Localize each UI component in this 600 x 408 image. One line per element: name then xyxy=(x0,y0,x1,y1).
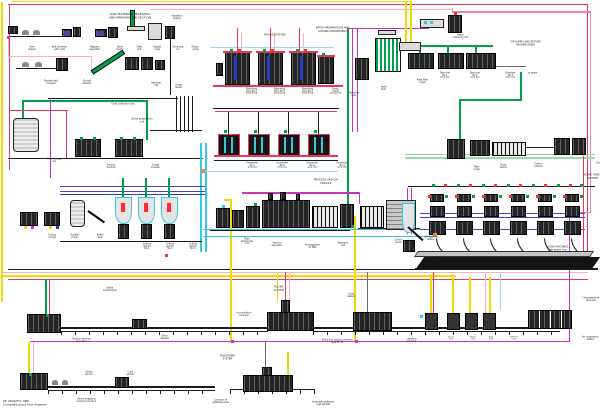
lbl-cr2-text: Culture reactor No.2 xyxy=(155,243,185,250)
cr1-slit xyxy=(121,203,125,212)
salmon-feed-2 xyxy=(274,33,275,51)
lbl-pallet-sys: PALLETIZING SYSTEM xyxy=(170,351,216,370)
lbl-packer-text: Case packer xyxy=(113,371,147,376)
filler4-green xyxy=(526,195,529,198)
lbl-dis1-text: Dissolver No.1 V=1 m3 xyxy=(430,72,460,79)
lbl-mill-text: Hammer mill xyxy=(142,82,170,87)
conveyor2-legs xyxy=(48,390,215,394)
lbl-buffer-text: Buffer tank xyxy=(86,234,114,239)
black-h-130 xyxy=(150,130,202,131)
magenta-center-v1 xyxy=(352,28,354,132)
tl-drop-vert xyxy=(170,38,171,95)
filler5-green xyxy=(553,195,556,198)
crimson-l-vert xyxy=(66,110,67,158)
f1-slit-a xyxy=(224,137,226,153)
magenta-dot-pump1 xyxy=(31,226,34,229)
band-line-yellow xyxy=(2,275,456,277)
rinser-machine xyxy=(27,314,61,333)
bucket-elevator xyxy=(56,58,68,71)
lbl-caption: PR 2009/FTL OBE Complete plant flow diag… xyxy=(3,396,95,408)
dosing-pump-1 xyxy=(20,212,38,226)
cyan-center-h236 xyxy=(203,236,433,237)
mint-supply-2 xyxy=(405,157,595,159)
roller-drive xyxy=(97,31,104,36)
indigo-rail-b xyxy=(60,191,205,192)
crimson-l-horiz xyxy=(10,110,68,111)
elevator-head xyxy=(73,27,81,37)
green-reactor-stub2 xyxy=(145,178,147,198)
blue-rail xyxy=(60,194,205,195)
cr1-stand xyxy=(118,224,129,239)
lbl-separator2: Separator unit xyxy=(302,238,332,257)
lbl-wrap-line-text: Shrink-wrapping machine line No.2 xyxy=(58,398,114,403)
rail-green-7 xyxy=(580,184,583,187)
yellow-tr-v2 xyxy=(410,2,412,43)
lbl-cr3-text: Culture reactor No.3 xyxy=(178,243,208,250)
lbl-sieving-text: Sieving machine xyxy=(96,164,126,169)
fermenter-3 xyxy=(278,134,300,156)
rotary-valve xyxy=(165,26,175,39)
gray-drain-h xyxy=(496,66,526,67)
red-dot-reactor xyxy=(165,254,168,257)
green-dot-dt1 xyxy=(230,49,233,52)
pile-1 xyxy=(22,30,29,35)
orange-conn-right xyxy=(433,233,437,237)
control-cabinet xyxy=(492,142,526,156)
green-dot-su2 xyxy=(93,137,96,140)
water-meter-unit xyxy=(399,42,421,51)
lbl-slurry-text: Slurry preparation unit xyxy=(122,118,162,123)
lbl-transfer-pump: Transfer pump xyxy=(42,230,66,249)
green-dot-m4 xyxy=(29,373,32,376)
right-cluster-h xyxy=(526,147,554,148)
lbl-dosing-pumps: Dosing pumps xyxy=(14,230,42,249)
lbl-crate-washer-text: Crate washer xyxy=(333,293,369,298)
lbl-cpanel: Control panel xyxy=(352,235,386,254)
tl-conveyor-rail1 xyxy=(8,36,62,37)
red-dot-dt1 xyxy=(238,49,241,52)
green-dust-vert2 xyxy=(146,100,148,140)
sieving-machine xyxy=(75,139,101,157)
lbl-wrap-line: Shrink-wrapping machine line No.2 xyxy=(10,394,66,408)
receiving-bin xyxy=(148,23,162,40)
process-tower-3 xyxy=(296,194,300,200)
crimson-feed-1 xyxy=(237,28,238,51)
filler-2-top xyxy=(457,194,471,202)
pink-dose-v xyxy=(485,272,486,314)
magenta-center-h xyxy=(347,28,429,30)
green-dot-fm4 xyxy=(314,130,317,133)
lbl-cabinet-text: Control cabinet xyxy=(521,163,555,168)
lbl-kneader-text: Dough kneader xyxy=(140,164,172,169)
black-riser-1 xyxy=(176,96,177,132)
lbl-dt3-text: Dissolving tank No.3 V=2.5 m3 xyxy=(294,88,320,95)
lbl-filling-system: FILLING SYSTEM xyxy=(228,282,272,301)
lbl-pumpst: Pump station xyxy=(468,160,494,179)
yellow-dot-pump1 xyxy=(24,226,27,229)
lbl-dis3: Dissolver No.3 V=1 m3 xyxy=(464,72,498,93)
filler-4-low xyxy=(510,221,527,235)
black-riser-5 xyxy=(192,96,193,132)
lbl-unscrambler: Bottle unscrambler xyxy=(58,283,96,302)
yellow-tr-v1 xyxy=(405,2,407,43)
lbl-cooker-text: Syrup cooker V=1.6 m3 xyxy=(322,88,348,95)
orchid-stub xyxy=(452,8,453,13)
palecyan-b2-line xyxy=(205,171,338,172)
green-dot-dt4 xyxy=(322,53,325,56)
green-dot-su4 xyxy=(133,137,136,140)
rail-red-6 xyxy=(569,184,572,187)
filler-2-low xyxy=(456,221,473,235)
lbl-fm3-text: Fermenter No.3 V=4 m3 xyxy=(298,162,326,169)
lbl-compressor-text: Compressor unit xyxy=(583,162,600,167)
lbl-carton-text: Carton erector xyxy=(74,371,104,376)
rail-green-2 xyxy=(457,184,460,187)
blue-dot-pump2 xyxy=(56,226,59,229)
b1-small-tank-a xyxy=(216,63,223,76)
rail-red-3 xyxy=(494,184,497,187)
f4-slit-b xyxy=(321,137,323,153)
lbl-fm3: Fermenter No.3 V=4 m3 xyxy=(274,162,302,183)
screw-feeder xyxy=(141,57,153,70)
paleblue-dose-v xyxy=(500,272,501,310)
crimson-m1-vert xyxy=(49,279,51,315)
rail-green-4 xyxy=(507,184,510,187)
lbl-dis2-text: Dissolver No.2 V=1 m3 xyxy=(460,72,490,79)
lbl-kneader: Dough kneader xyxy=(112,160,144,179)
lbl-dis2: Dissolver No.2 V=1 m3 xyxy=(434,72,464,93)
cr2-stand xyxy=(141,224,152,239)
filler1-green xyxy=(445,195,448,198)
indigo-rail-a xyxy=(60,186,205,187)
lbl-sifter-text: Sifter unit xyxy=(129,46,149,51)
mt-divider-3 xyxy=(561,311,562,328)
lbl-dt3: Dissolving tank No.3 V=2.5 m3 xyxy=(272,88,298,109)
filler5-red xyxy=(536,195,539,198)
b2-drop-2 xyxy=(258,112,259,134)
yellow-dose-v4 xyxy=(489,277,491,314)
process-tower-2 xyxy=(280,192,286,200)
lbl-accum-text: Accumulation conveyor xyxy=(222,312,266,317)
cyan-dot-past xyxy=(222,205,225,208)
cyan-trunk-v1 xyxy=(200,143,202,252)
red-dot-hopper-top xyxy=(454,12,457,15)
black-riser-2 xyxy=(180,96,181,132)
f4-slit-a xyxy=(314,137,316,153)
carton-2 xyxy=(62,380,68,385)
filler-1-low xyxy=(429,221,446,235)
compressor-b xyxy=(572,138,586,155)
yellow-dose-v1 xyxy=(430,277,432,314)
lbl-cooler-text: Plate cooler xyxy=(465,166,489,171)
fermenter-1 xyxy=(218,134,240,156)
filler-3-top xyxy=(484,194,498,202)
yellow-top-line xyxy=(12,1,412,3)
lbl-fm1: Fermenter No.1 V=4 m3 xyxy=(214,162,242,183)
lbl-slurry: Slurry preparation unit xyxy=(92,114,132,133)
green-dot-fm1 xyxy=(224,130,227,133)
palletizer-tower xyxy=(262,367,272,376)
dose-tank-3 xyxy=(465,313,478,330)
green-dot-m1 xyxy=(46,314,49,317)
salmon-tl-horiz xyxy=(8,56,92,57)
lbl-elevator: Bucket elevator xyxy=(46,76,76,95)
mt-divider-1 xyxy=(539,311,540,328)
lbl-caption-text: PR 2009/FTL OBE Complete plant flow diag… xyxy=(3,400,95,407)
filling-machine xyxy=(267,312,314,331)
deaerator-unit xyxy=(232,210,244,228)
dt2-agitator xyxy=(267,56,270,80)
yellow-m2-vert xyxy=(277,272,279,301)
lbl-dt1-text: Dissolving tank No.1 V=2.5 m3 xyxy=(238,88,264,95)
cr2-slit xyxy=(144,203,148,212)
lbl-yeast-text: Yeast tank xyxy=(370,86,396,91)
green-reactor-stub1 xyxy=(122,178,124,198)
lbl-mag-separator-text: Magnetic separator xyxy=(80,46,110,51)
black-riser-3 xyxy=(184,96,185,132)
filler2-red xyxy=(455,195,458,198)
f3-slit-a xyxy=(284,137,286,153)
green-dot-fm2 xyxy=(254,130,257,133)
case-packer-machine xyxy=(20,373,48,390)
lbl-elevator-text: Bucket elevator xyxy=(72,80,102,85)
lbl-conv-pallet-text: Conveyor to palletizing area xyxy=(190,399,252,404)
crimson-feed-2 xyxy=(270,28,271,51)
red-dot-dt2 xyxy=(271,49,274,52)
labeller-machine xyxy=(353,312,392,331)
filler-3-low xyxy=(483,221,500,235)
lbl-homog: Homogenizer 25 MPa xyxy=(266,240,300,259)
lbl-checkweigher-text: Check- weigher xyxy=(150,335,180,340)
process-flow-diagram: Feed hopperBelt conveyor with scaleMagne… xyxy=(0,0,600,408)
lbl-fm1-text: Fermenter No.1 V=4 m3 xyxy=(238,162,266,169)
lbl-filter-text: Plate filter press xyxy=(403,79,443,84)
lbl-deaerator-text: Vacuum deaerator xyxy=(262,242,292,247)
pink-m4-vert xyxy=(33,342,34,375)
lbl-weigher-text: Hopper scale xyxy=(147,46,167,51)
f3-slit-b xyxy=(291,137,293,153)
pile-3 xyxy=(22,62,29,67)
filler-1-mid xyxy=(430,206,445,217)
dt3-agitator xyxy=(300,56,303,80)
filler-5-low xyxy=(537,221,554,235)
rail-green-5 xyxy=(532,184,535,187)
conveyor1-legs xyxy=(61,331,268,335)
cr3-slit xyxy=(167,203,171,212)
center-base-1 xyxy=(210,230,350,232)
filler-2-mid xyxy=(457,206,472,217)
lbl-transfer-pump-text: Transfer pump xyxy=(63,234,87,239)
filler-6-low xyxy=(564,221,581,235)
green-dot-dt2 xyxy=(263,49,266,52)
separator-grid xyxy=(312,206,338,228)
dissolver-1 xyxy=(408,53,434,69)
lbl-fm2: Fermenter No.2 V=4 m3 xyxy=(244,162,272,183)
filler6-red xyxy=(563,195,566,198)
lbl-sewer-text: to sewer xyxy=(521,72,545,74)
filter-press-top xyxy=(378,30,396,35)
orchid-loop-v xyxy=(590,11,592,213)
pump-station xyxy=(470,140,490,156)
magenta-dot-y2 xyxy=(355,340,358,343)
feed-hopper xyxy=(8,26,18,34)
salmon-tl-vert xyxy=(8,38,9,56)
yellow-dose-v2 xyxy=(452,277,454,314)
yellow-left-border xyxy=(1,2,3,302)
wrap-unit xyxy=(115,377,129,388)
yellow-dot-pump2 xyxy=(49,226,52,229)
teal-dot-air2 xyxy=(430,21,433,24)
lbl-dis3-text: Dissolver No.3 V=1 m3 xyxy=(493,72,527,79)
mt-divider-2 xyxy=(550,311,551,328)
lbl-cabinet: Control cabinet xyxy=(492,159,526,178)
filler1-red xyxy=(428,195,431,198)
cyan-dot-dose xyxy=(420,315,423,318)
lbl-accum: Accumulation conveyor xyxy=(184,308,228,327)
lbl-receivers-text: Compressed air receivers xyxy=(565,297,600,302)
lbl-pallet-sys-text: PALLETIZING SYSTEM xyxy=(205,355,251,360)
green-return-v1 xyxy=(520,72,522,100)
checkweigher-unit xyxy=(132,319,147,329)
lbl-silo: Flour storage silo xyxy=(8,154,42,173)
lbl-palletizer-text: Automatic palletizer type AP-400 xyxy=(291,401,355,406)
dissolver-3 xyxy=(466,53,496,69)
lbl-cooler: Plate cooler xyxy=(444,162,468,181)
lbl-filter: Plate filter press xyxy=(368,75,408,94)
rail-green-1 xyxy=(432,184,435,187)
mill-aux xyxy=(155,60,165,70)
lbl-crate-washer: Crate washer xyxy=(302,289,338,308)
magenta-frame-v xyxy=(359,192,361,204)
pasteurizer-unit xyxy=(216,208,230,228)
yellow-m4-vert xyxy=(28,342,30,375)
f1-slit-b xyxy=(231,137,233,153)
lbl-dust-line-text: Dust collection line xyxy=(93,103,153,106)
process-tower-1 xyxy=(268,193,273,200)
separator-drive xyxy=(64,31,70,36)
lbl-mill: Hammer mill xyxy=(118,78,146,97)
pile-2 xyxy=(33,30,40,35)
carton-1 xyxy=(52,380,58,385)
green-main-trunk xyxy=(347,28,349,228)
dissolver-2 xyxy=(438,53,464,69)
green-dust-horiz xyxy=(22,100,148,102)
lbl-dt2: Dissolving tank No.2 V=2.5 m3 xyxy=(244,88,270,109)
lbl-filler: Filling and capping machine type RF-12 xyxy=(250,335,314,354)
filler3-green xyxy=(499,195,502,198)
platform-front-face xyxy=(416,257,600,269)
lbl-fm4: Fermenter No.4 V=4 m3 xyxy=(304,162,332,183)
teal-dot-air1 xyxy=(424,21,427,24)
right-rail-186 xyxy=(408,186,595,187)
sugar-hopper xyxy=(448,15,462,33)
filler-5-top xyxy=(538,194,552,202)
black-b1-rail xyxy=(213,108,339,109)
orchid-loop-h xyxy=(452,11,591,13)
dose-tank-4 xyxy=(483,313,496,330)
dt4-top-bar xyxy=(317,55,335,57)
magenta-dot-y1 xyxy=(231,340,234,343)
dose-tank-2 xyxy=(447,313,460,330)
filler-6-mid xyxy=(565,206,580,217)
gray-chute-left xyxy=(87,210,105,223)
green-return-h xyxy=(460,99,522,101)
lbl-fm4-text: Fermenter No.4 V=4 m3 xyxy=(328,162,356,169)
filler-1-top xyxy=(430,194,444,202)
conveyor2-rail-a xyxy=(48,386,215,388)
lbl-metering: Metering tank xyxy=(324,88,346,107)
green-dot-homog xyxy=(254,203,257,206)
lbl-deaerator: Vacuum deaerator xyxy=(236,238,266,257)
filler3-red xyxy=(482,195,485,198)
lbl-dis1: Dissolver No.1 V=1 m3 xyxy=(404,72,434,93)
pile-4 xyxy=(35,62,42,67)
crimson-top-line xyxy=(8,4,588,6)
lbl-water-meter-text: Water metering unit xyxy=(443,34,477,39)
green-dot-dt3 xyxy=(296,49,299,52)
lbl-sieving: Sieving machine xyxy=(70,160,100,179)
lbl-cr2: Culture reactor No.2 xyxy=(129,243,159,264)
yeast-tank xyxy=(355,58,369,80)
filler4-red xyxy=(509,195,512,198)
crimson-dose-v xyxy=(433,272,434,314)
green-reactor-stub3 xyxy=(168,178,170,198)
cr3-stand xyxy=(164,224,175,239)
sifter-unit xyxy=(108,27,118,38)
green-incline-conveyor xyxy=(91,50,126,75)
lbl-belt-conveyor-text: Belt conveyor with scale xyxy=(46,46,72,51)
lbl-section-title: RAW MATERIAL RECEIVING AND PREPARATION S… xyxy=(66,9,130,28)
dissolve-tank-3 xyxy=(291,52,316,85)
green-dot-fm3 xyxy=(284,130,287,133)
f2-slit-b xyxy=(261,137,263,153)
green-dot-trunk xyxy=(351,225,354,228)
rail-red-4 xyxy=(519,184,522,187)
lbl-cooker: Syrup cooker V=1.6 m3 xyxy=(300,88,326,109)
rail-green-3 xyxy=(482,184,485,187)
dissolve-tank-1 xyxy=(225,52,250,85)
filler-3-mid xyxy=(484,206,499,217)
magenta-frame-h xyxy=(242,192,360,194)
filler-5-mid xyxy=(538,206,553,217)
lbl-screw: Screw feeder xyxy=(146,80,170,99)
lbl-fm2-text: Fermenter No.2 V=4 m3 xyxy=(268,162,296,169)
lbl-batch-dept: BATCH PREPARATION AND DOSING DEPARTMENT xyxy=(268,23,324,42)
crimson-right-line xyxy=(587,4,589,269)
lbl-cip-headers-text: CIP SUPPLY AND RETURN HEADERS DN50 xyxy=(495,41,557,46)
lbl-homog-text: Homogenizer 25 MPa xyxy=(295,244,329,249)
black-b2-rail xyxy=(214,160,338,161)
lbl-aspiration-text: Aspiration system xyxy=(162,15,192,20)
magenta-mid-line xyxy=(30,341,570,343)
lbl-belt-conveyor: Belt conveyor with scale xyxy=(24,42,50,61)
b2-drop-4 xyxy=(318,112,319,134)
left-rail-158 xyxy=(8,158,203,159)
syrup-cooker xyxy=(318,56,334,84)
filler6-green xyxy=(580,195,583,198)
filler-4-mid xyxy=(511,206,526,217)
lbl-buffer: Buffer tank xyxy=(62,230,90,249)
filler-6-top xyxy=(565,194,579,202)
buffer-tank xyxy=(70,200,85,227)
lbl-reclaim-text: Reclaim belt conveyor xyxy=(36,80,66,85)
orange-conn-left xyxy=(201,169,205,173)
rail-green-6 xyxy=(557,184,560,187)
crimson-feed-3 xyxy=(299,28,300,51)
dt1-agitator xyxy=(234,56,237,80)
gray-m3-vert xyxy=(367,272,368,313)
process-main-machine xyxy=(262,200,310,228)
